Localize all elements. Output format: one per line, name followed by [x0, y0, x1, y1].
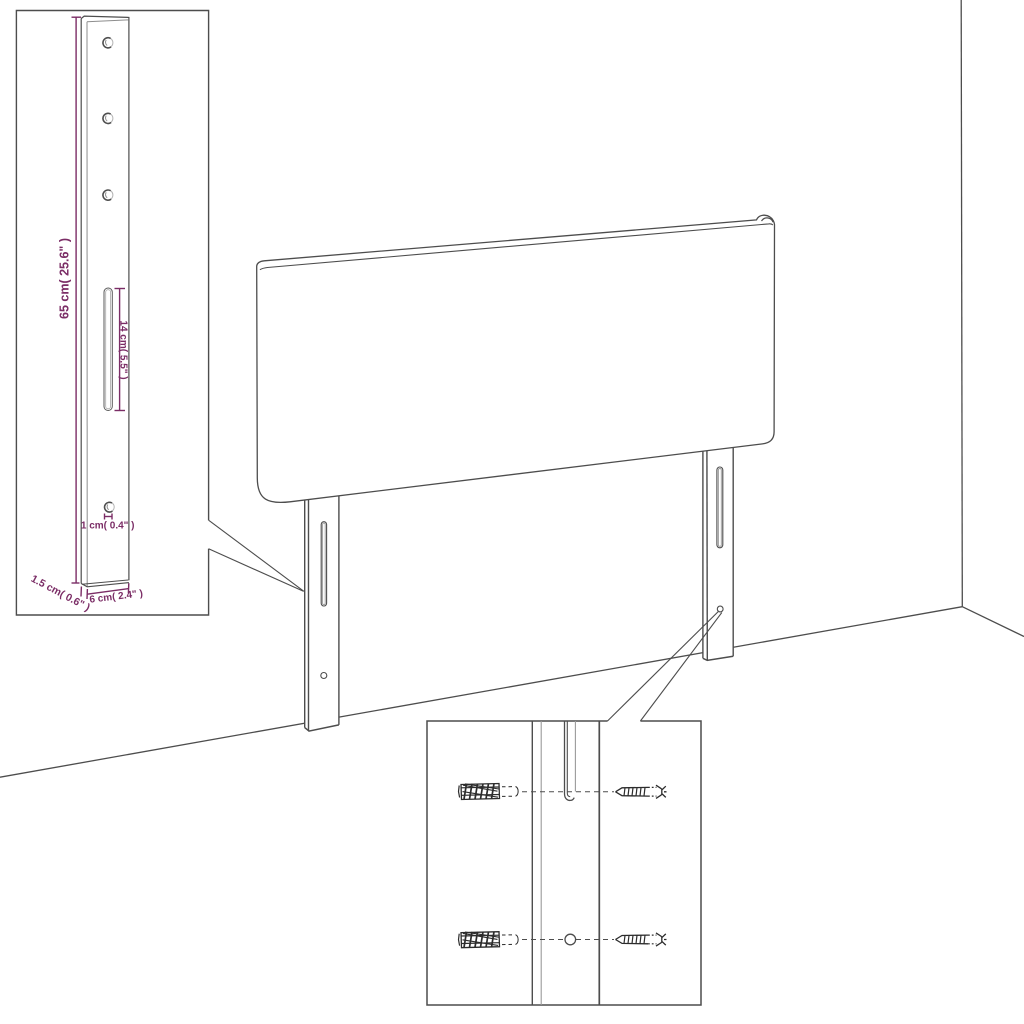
svg-text:1 cm( 0.4" ): 1 cm( 0.4" ) [81, 521, 135, 532]
svg-text:14 cm( 5.5" ): 14 cm( 5.5" ) [117, 320, 128, 379]
svg-text:65 cm( 25.6" ): 65 cm( 25.6" ) [57, 238, 71, 319]
